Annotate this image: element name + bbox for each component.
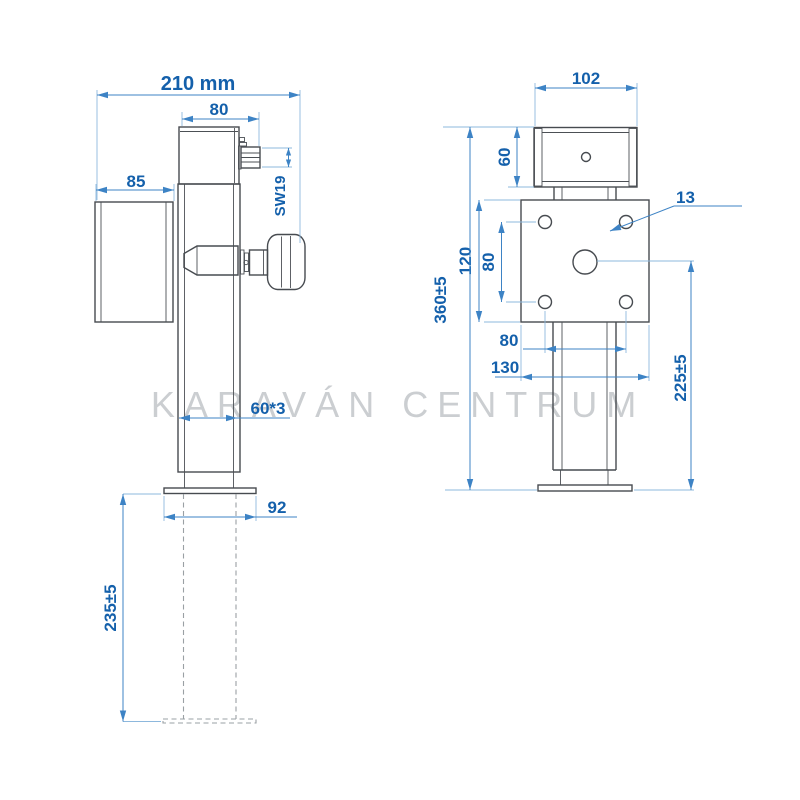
dim-retracted-height: 225±5 bbox=[597, 261, 694, 490]
dim-hole-pitch-vertical: 80 bbox=[479, 222, 536, 302]
side-crank-knob-assembly bbox=[184, 235, 305, 290]
svg-text:92: 92 bbox=[268, 498, 287, 517]
plate-hole-top-left bbox=[539, 216, 552, 229]
dim-front-gearbox-height: 60 bbox=[443, 127, 534, 187]
svg-text:102: 102 bbox=[572, 69, 600, 88]
svg-text:225±5: 225±5 bbox=[671, 354, 690, 401]
dim-hex-key: SW19 bbox=[262, 148, 292, 216]
svg-text:235±5: 235±5 bbox=[101, 584, 120, 631]
side-outer-tube bbox=[178, 184, 240, 488]
side-gearbox bbox=[179, 127, 239, 184]
side-hidden-extended-leg bbox=[163, 494, 256, 723]
watermark-text: KARAVÁN CENTRUM bbox=[151, 384, 645, 425]
dim-flange-width: 92 bbox=[164, 496, 297, 521]
front-gearbox bbox=[534, 128, 637, 188]
dim-front-gearbox-width: 102 bbox=[535, 69, 637, 126]
svg-text:80: 80 bbox=[479, 253, 498, 272]
dim-hole-diameter: 13 bbox=[610, 188, 742, 231]
svg-text:13: 13 bbox=[676, 188, 695, 207]
svg-text:80: 80 bbox=[210, 100, 229, 119]
svg-text:210 mm: 210 mm bbox=[161, 73, 236, 95]
plate-center-hole bbox=[573, 250, 597, 274]
dim-bracket-depth: 85 bbox=[96, 172, 174, 201]
svg-text:SW19: SW19 bbox=[272, 176, 289, 217]
svg-text:120: 120 bbox=[456, 247, 475, 275]
svg-text:85: 85 bbox=[127, 172, 146, 191]
svg-text:360±5: 360±5 bbox=[431, 276, 450, 323]
svg-text:60: 60 bbox=[495, 148, 514, 167]
front-upper-neck bbox=[554, 187, 616, 200]
dim-total-width: 210 mm bbox=[97, 73, 300, 243]
side-crank-screw-detail bbox=[240, 138, 247, 147]
technical-drawing-page: KARAVÁN CENTRUM bbox=[0, 0, 800, 800]
side-hex-stub bbox=[239, 146, 261, 169]
front-foot-plate bbox=[538, 485, 632, 491]
plate-hole-bottom-right bbox=[620, 296, 633, 309]
side-flange bbox=[164, 488, 256, 494]
svg-text:80: 80 bbox=[500, 331, 519, 350]
svg-text:60*3: 60*3 bbox=[251, 399, 286, 418]
technical-drawing-canvas: KARAVÁN CENTRUM bbox=[0, 0, 800, 800]
svg-text:130: 130 bbox=[491, 358, 519, 377]
dim-gearbox-width: 80 bbox=[182, 100, 259, 146]
side-mount-bracket bbox=[95, 202, 173, 322]
front-view bbox=[521, 128, 649, 492]
front-gearbox-hole bbox=[582, 153, 591, 162]
dim-stroke-length: 235±5 bbox=[101, 494, 161, 722]
plate-hole-bottom-left bbox=[539, 296, 552, 309]
